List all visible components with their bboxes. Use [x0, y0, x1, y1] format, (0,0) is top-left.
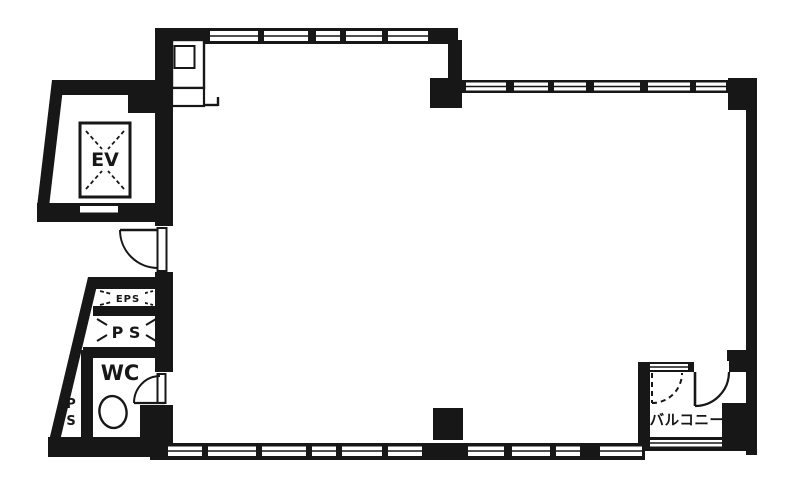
floorplan-page: EV EPS P S WC P S バルコニー: [0, 0, 787, 491]
column-bottom-middle: [433, 408, 463, 440]
eps-room: EPS: [100, 289, 153, 306]
ps-room: P S: [97, 319, 156, 342]
wall-wc-left: [81, 350, 93, 445]
unit-inner-square: [175, 46, 195, 68]
ps-shaft-strip: P S: [66, 397, 76, 429]
ps-label: P S: [112, 323, 141, 342]
walls: [37, 28, 757, 460]
ps-shaft-label-s: S: [66, 414, 75, 429]
ps-shaft-label-p: P: [66, 397, 76, 412]
wall-balcony-left: [638, 362, 650, 450]
elevator-cab: EV: [80, 123, 130, 197]
wall-ev-hall-corner-block: [128, 85, 172, 113]
wall-step-stub: [448, 40, 462, 82]
wall-eps-top: [90, 277, 172, 289]
window-row-top-right: [466, 83, 726, 91]
balcony-door-opening: [694, 361, 729, 373]
unit-lower-box: [172, 88, 204, 106]
window-row-bottom: [168, 447, 642, 457]
eps-label: EPS: [116, 294, 140, 305]
window-sash-dashed-arc: [652, 373, 682, 403]
wall-ps-bottom: [83, 347, 172, 358]
wall-ev-hall-slant: [37, 80, 64, 207]
balcony-label: バルコニー: [650, 412, 725, 429]
elevator-door-slit: [80, 206, 118, 213]
toilet-bowl: [97, 394, 129, 430]
wall-right: [746, 90, 757, 455]
door-swing-arc: [120, 230, 158, 268]
door-leaf: [158, 228, 167, 271]
wc-room: WC: [97, 361, 139, 430]
window-row-top-left: [210, 31, 428, 41]
wall-eps-ps-divider: [93, 306, 172, 316]
doors: [120, 228, 729, 406]
elevator-label: EV: [91, 149, 119, 171]
wc-label: WC: [101, 361, 140, 385]
door-leaf: [158, 374, 166, 403]
door-swing-arc: [695, 372, 729, 406]
corridor-door: [120, 228, 167, 271]
column-top-middle: [430, 78, 462, 108]
balcony-door: [652, 372, 729, 406]
wall-balcony-se-chunk: [722, 403, 757, 450]
built-in-unit: [172, 40, 218, 106]
floorplan-drawing: EV EPS P S WC P S バルコニー: [0, 0, 787, 491]
wall-wc-bottom: [48, 437, 160, 457]
